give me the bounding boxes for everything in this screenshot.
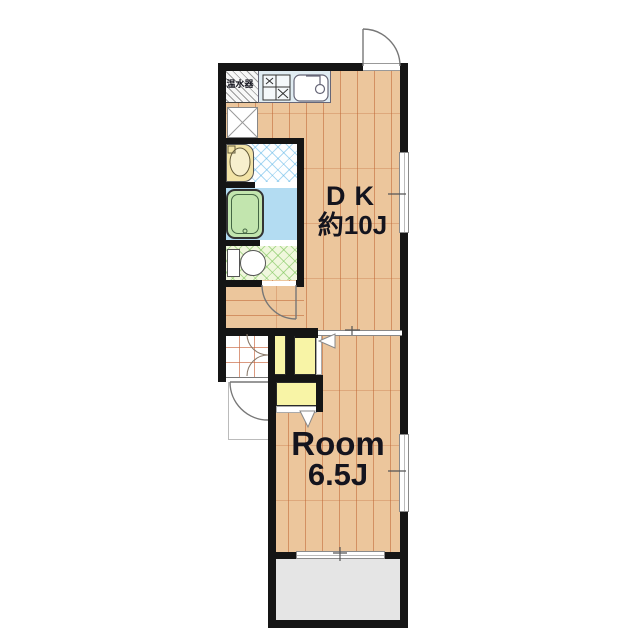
washbasin-vanity — [226, 144, 254, 182]
balcony-window — [296, 551, 385, 559]
room-size-label: 6.5J — [285, 459, 391, 490]
toilet-bottom-wall-stub — [296, 280, 304, 287]
closet-lower-right-wall — [316, 375, 323, 412]
wet-area-top-wall — [218, 138, 304, 144]
bath-toilet-doorway — [260, 240, 297, 246]
washbasin-bath-doorway — [255, 182, 297, 188]
wet-area-right-wall — [297, 138, 304, 287]
bathtub — [226, 189, 264, 239]
closet-lower-open-side — [276, 406, 317, 413]
toilet-bowl — [240, 250, 266, 276]
room-window — [399, 434, 409, 512]
toilet-door-threshold — [262, 281, 296, 286]
closet-lower — [276, 382, 317, 406]
balcony-wall-right — [400, 552, 408, 628]
closet-divider-wall — [286, 333, 294, 375]
dk-room-sliding-partition — [318, 330, 402, 336]
washbasin-bath-wall — [222, 182, 255, 188]
closet-upper-right — [294, 334, 316, 375]
dk-label: DK — [307, 183, 402, 210]
bath-toilet-wall — [222, 240, 260, 246]
toilet-bottom-wall — [218, 280, 262, 287]
balcony-wall-bottom — [268, 620, 408, 628]
room-left-wall — [268, 375, 276, 558]
hallway-bottom-wall — [218, 328, 295, 336]
entrance-genkan-floor — [225, 332, 268, 378]
right-wall-lower — [400, 512, 408, 558]
dk-size-label: 約10J — [305, 212, 400, 238]
balcony-wall-left — [268, 552, 276, 628]
genkan-right-wall — [268, 330, 275, 378]
entrance-door-threshold — [363, 63, 400, 71]
hallway-floor — [222, 285, 304, 330]
closet-upper-open-side — [316, 334, 322, 375]
top-wall-left — [218, 63, 363, 71]
dk-bottom-wall-stub — [295, 328, 318, 338]
closet-upper-left — [274, 334, 286, 375]
balcony-fill — [274, 558, 401, 621]
entrance-door-arc — [363, 29, 400, 66]
toilet-tank — [227, 249, 240, 277]
room-label: Room — [285, 427, 391, 460]
entrance-porch — [228, 382, 268, 440]
water-heater-label: 温水器 — [221, 80, 259, 89]
right-wall-upper — [400, 63, 408, 153]
floorplan-canvas: 温水器 DK 約10J Room 6.5J — [0, 0, 640, 640]
washing-machine-space — [227, 107, 258, 138]
kitchen-counter — [258, 70, 331, 103]
